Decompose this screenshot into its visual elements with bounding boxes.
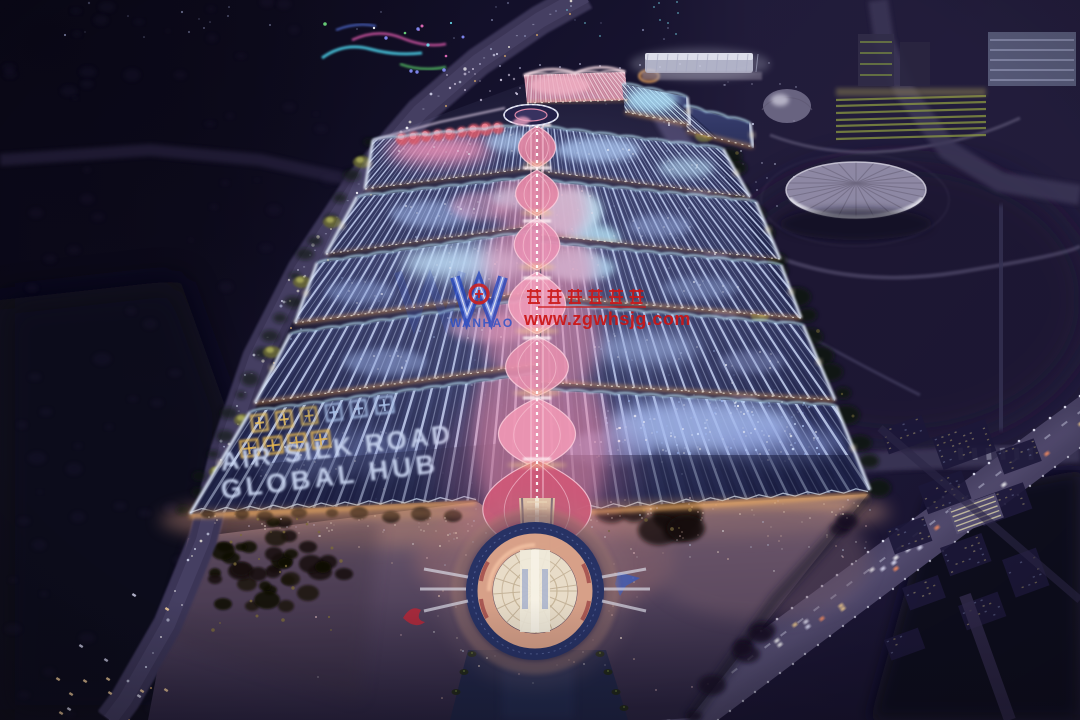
- svg-text:www.zgwhsjg.com: www.zgwhsjg.com: [523, 309, 691, 329]
- svg-text:WANHAO: WANHAO: [450, 316, 514, 330]
